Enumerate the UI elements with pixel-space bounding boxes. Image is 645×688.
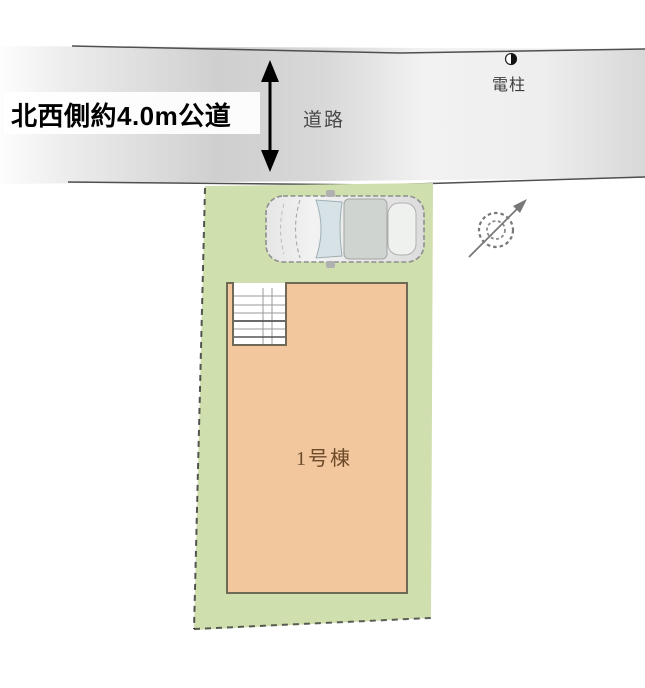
site-plan-canvas: 北西側約4.0m公道 道路 電柱 1号棟 (0, 0, 645, 688)
utility-pole-label: 電柱 (492, 71, 526, 95)
road-side-annotation: 北西側約4.0m公道 (11, 96, 231, 133)
car-roof (344, 199, 387, 259)
utility-pole-icon (506, 54, 517, 65)
car-mirror (326, 261, 335, 268)
building-label: 1号棟 (296, 442, 352, 471)
car-mirror (326, 190, 335, 197)
car-rear-window (388, 203, 416, 255)
stairs-area (233, 283, 286, 345)
compass-needle (469, 207, 519, 257)
car-icon (266, 190, 424, 268)
stairs-surface (233, 283, 286, 345)
road-label: 道路 (303, 105, 345, 132)
north-compass-icon (469, 199, 527, 257)
